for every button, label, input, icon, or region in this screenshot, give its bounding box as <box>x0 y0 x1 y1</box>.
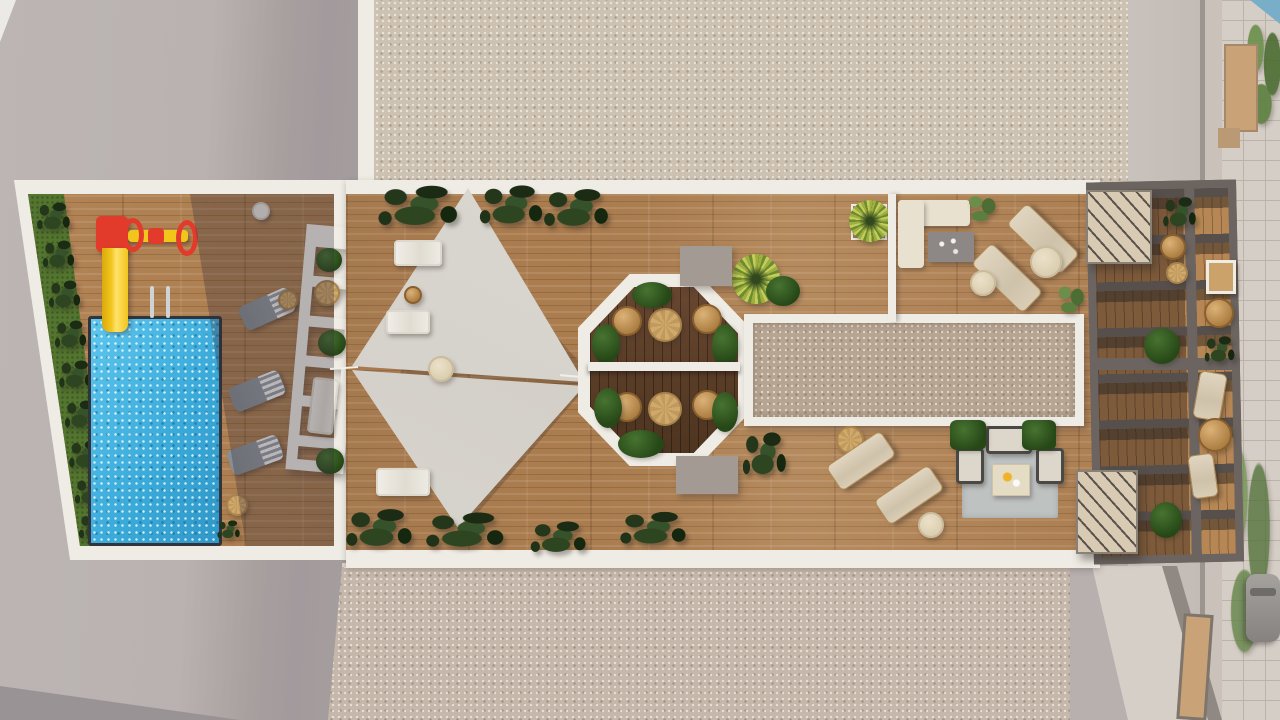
planter-box-bush <box>950 420 986 450</box>
east-wicker-chair <box>1204 298 1234 328</box>
hedge-bush <box>50 314 92 356</box>
partition-wall <box>888 194 896 322</box>
framed-panel <box>1206 260 1236 294</box>
sail-center-table <box>428 356 454 382</box>
north-lounge-bush <box>960 188 1004 228</box>
play-spinner-knob <box>148 228 164 244</box>
pool-ladder-rail <box>150 286 154 318</box>
car-windshield <box>1250 588 1276 596</box>
dining-table <box>648 392 682 426</box>
pool-corner-plant <box>214 516 244 544</box>
hedge-bush <box>38 234 80 276</box>
pavilion-entry-north <box>680 246 732 286</box>
play-spinner-wheel <box>176 220 198 256</box>
play-spinner-wheel <box>122 218 144 252</box>
parked-car <box>1246 574 1280 642</box>
fire-table <box>992 464 1030 496</box>
planter-mid <box>736 422 794 488</box>
planter-box-bush <box>1022 420 1056 450</box>
planter-south <box>336 500 424 558</box>
gravel-roof-north-border <box>358 0 374 182</box>
rooftop-render <box>0 0 1280 720</box>
pool-ladder-rail <box>166 286 170 318</box>
deck-side-table <box>404 286 422 304</box>
palm-plant <box>849 200 891 242</box>
l-sofa-side <box>898 200 924 268</box>
swimming-pool <box>88 316 222 546</box>
east-round-table <box>1198 418 1232 452</box>
tan-wall-panel-small <box>1218 128 1240 148</box>
pergola-round-table <box>1166 262 1188 284</box>
north-round-table <box>1030 246 1062 278</box>
dining-table <box>648 308 682 342</box>
planter-south <box>610 504 698 554</box>
pavilion-bush <box>632 282 672 308</box>
octagon-outer-bush <box>766 276 800 306</box>
pavilion-bush <box>594 388 622 428</box>
coffee-table-north <box>928 232 974 262</box>
pavilion-entry-south <box>676 456 738 494</box>
pergola-bush <box>1144 328 1180 364</box>
kids-slide-chute <box>102 248 128 332</box>
tan-wall-panel-north <box>1224 44 1258 132</box>
south-armchair <box>1036 448 1064 484</box>
pergola-plant-south <box>1150 502 1182 538</box>
pergola-plant-north <box>1158 190 1202 236</box>
east-plant <box>1200 330 1240 370</box>
planter-north <box>534 180 620 238</box>
hedge-bush <box>32 196 76 238</box>
stair-canopy-north <box>1086 190 1152 264</box>
planter-north <box>366 176 472 238</box>
stair-canopy-south <box>1076 470 1138 554</box>
pavilion-bush <box>618 430 664 458</box>
deck-lounger <box>386 310 430 334</box>
planter-south <box>522 514 596 562</box>
planter-south <box>414 504 518 558</box>
skylight-gravel <box>753 323 1075 417</box>
north-lounge-bush <box>1050 278 1092 320</box>
south-round-table <box>918 512 944 538</box>
pavilion-bush <box>712 392 738 432</box>
hedge-bush <box>44 274 86 316</box>
deck-lounger <box>394 240 442 266</box>
pavilion-cross-beam <box>588 362 740 371</box>
pergola-chair <box>1160 234 1186 260</box>
north-round-table <box>970 270 996 296</box>
gravel-roof-north <box>374 0 1128 182</box>
deck-lounger <box>376 468 430 496</box>
south-armchair <box>956 448 984 484</box>
pavilion-bush <box>592 324 620 364</box>
